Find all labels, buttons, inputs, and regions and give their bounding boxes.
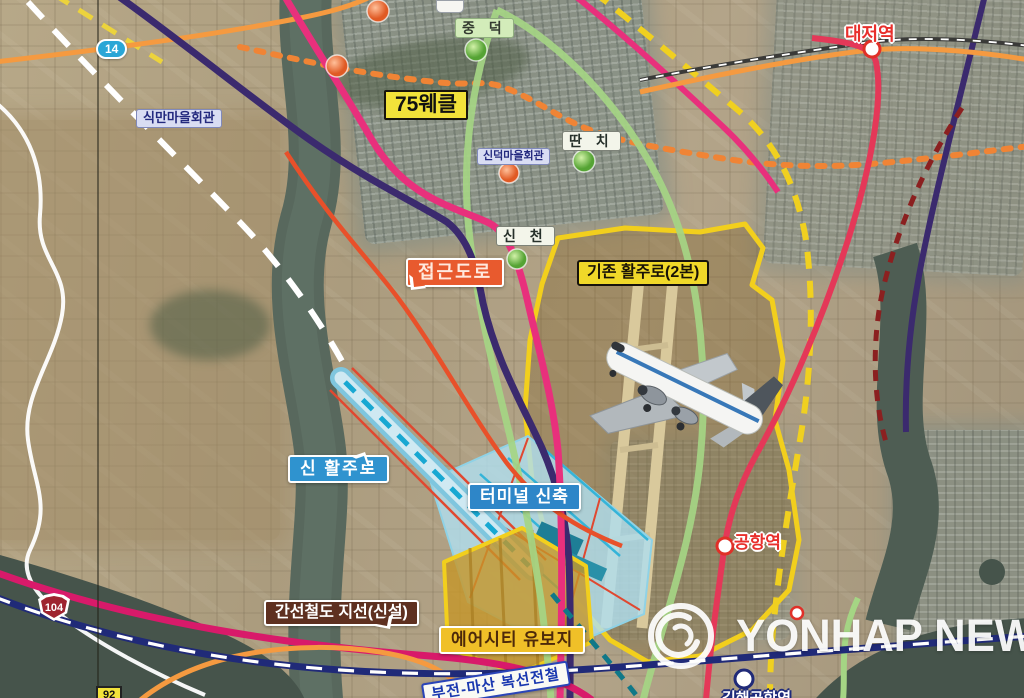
watermark-text: YONHAP NEWS bbox=[736, 610, 1024, 662]
label-sincheon: 신 천 bbox=[496, 226, 555, 246]
map-overlay-graphics bbox=[0, 0, 1024, 698]
yonhap-logo-icon bbox=[645, 598, 717, 674]
station-label-daejeo: 대저역 bbox=[845, 20, 895, 46]
route-shield-104-number: 104 bbox=[41, 596, 67, 618]
poi-dot-orange bbox=[499, 163, 519, 183]
yonhap-watermark: YONHAP NEWS bbox=[645, 598, 1024, 674]
label-existing-runway: 기존 활주로(2본) bbox=[577, 260, 709, 286]
label-sikman-village-hall: 식만마을회관 bbox=[136, 109, 222, 128]
clipped-box-top bbox=[436, 0, 464, 13]
label-new-runway: 신 활주로 bbox=[288, 455, 389, 483]
poi-dot-green bbox=[465, 39, 487, 61]
poi-dot-orange bbox=[367, 0, 389, 22]
label-ttanchi: 딴 치 bbox=[562, 131, 621, 151]
label-new-terminal: 터미널 신축 bbox=[468, 483, 581, 511]
satellite-planning-map: 14 식만마을회관 중 덕 75웨클 신덕마을회관 딴 치 대저역 신 천 접근… bbox=[0, 0, 1024, 698]
route-shield-14: 14 bbox=[96, 39, 127, 59]
map-fold-crease bbox=[97, 0, 99, 698]
poi-dot-orange bbox=[326, 55, 348, 77]
label-access-road: 접근도로 bbox=[406, 258, 504, 287]
station-marker-gonghang bbox=[717, 538, 733, 554]
label-sindeok-village-hall: 신덕마을회관 bbox=[477, 148, 550, 165]
route-shield-92: 92 bbox=[96, 686, 122, 698]
poi-dot-green bbox=[507, 249, 527, 269]
label-aircity-reserve: 에어시티 유보지 bbox=[439, 626, 585, 654]
label-trunk-rail-branch: 간선철도 지선(신설) bbox=[264, 600, 419, 626]
orange-dotted-line bbox=[240, 47, 1024, 166]
label-noise-contour-75: 75웨클 bbox=[384, 90, 468, 120]
station-label-gonghang: 공항역 bbox=[734, 528, 781, 553]
poi-dot-green bbox=[573, 150, 595, 172]
station-label-gimhae-airport: 김해공항역 bbox=[722, 687, 791, 698]
label-jungdeok: 중 덕 bbox=[455, 18, 514, 38]
